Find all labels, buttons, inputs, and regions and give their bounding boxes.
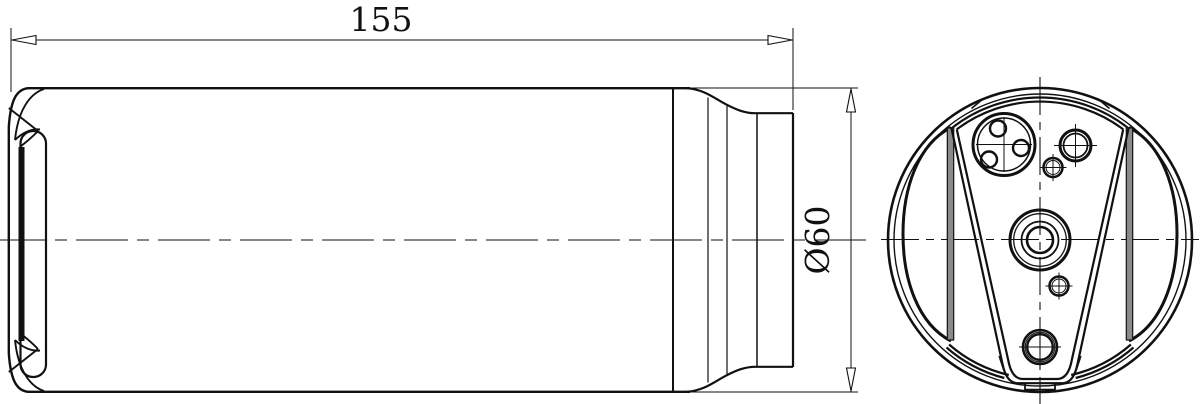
port-top-left-crosshair <box>976 117 1032 172</box>
drawing-canvas: 155 Ø60 <box>0 0 1200 404</box>
port-bottom <box>1019 326 1061 369</box>
arrowhead-left <box>12 36 36 45</box>
right-chord-band <box>1126 128 1132 340</box>
port-top-left <box>973 114 1035 176</box>
length-dimension: 155 <box>11 0 793 110</box>
arrowhead-down <box>847 368 856 391</box>
left-chord-band <box>947 128 953 340</box>
arrowhead-up <box>847 89 856 112</box>
small-hole-lower-crosshair <box>1046 273 1073 300</box>
centerlines <box>0 77 1199 404</box>
length-dimension-label: 155 <box>350 0 413 39</box>
small-hole-lower <box>1046 273 1073 300</box>
technical-drawing: 155 Ø60 <box>0 0 1200 404</box>
arrowhead-right <box>768 36 792 45</box>
port-bottom-crosshair <box>1019 326 1061 369</box>
small-hole-upper <box>1040 154 1067 181</box>
small-hole-upper-crosshair <box>1040 154 1067 181</box>
diameter-dimension-label: Ø60 <box>798 205 837 274</box>
